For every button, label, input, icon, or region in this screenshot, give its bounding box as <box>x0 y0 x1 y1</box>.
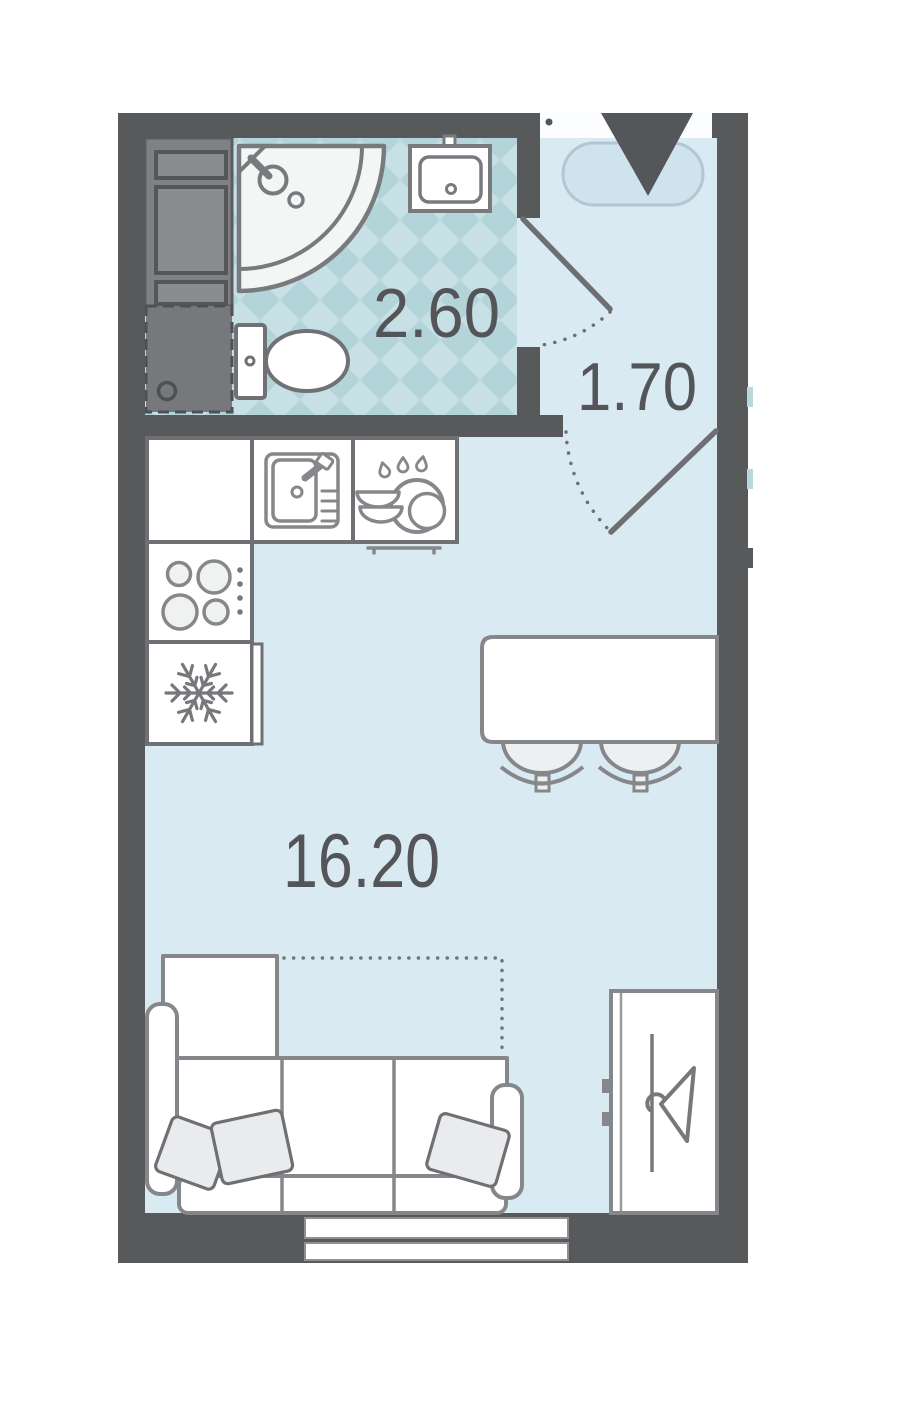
hallway-area-label: 1.70 <box>577 349 697 425</box>
stove-cabinet <box>147 542 252 642</box>
wardrobe <box>602 991 717 1213</box>
fridge-door <box>252 644 262 744</box>
washing-machine-icon <box>146 306 232 412</box>
shaft-panel <box>156 187 226 273</box>
sink-icon <box>266 453 338 527</box>
wardrobe-handle <box>602 1079 612 1093</box>
shaft-panel <box>156 282 226 304</box>
entrance-hinge-dot <box>546 119 553 126</box>
bathroom-wall-lower <box>517 347 540 415</box>
wall-top-left <box>118 113 540 138</box>
window-pane <box>305 1218 568 1238</box>
utility-shaft <box>145 138 232 306</box>
sofa-chaise <box>163 956 277 1059</box>
dining-table <box>482 637 717 742</box>
wall-below-bathroom <box>145 415 563 437</box>
window-pane <box>305 1243 568 1260</box>
wall-right <box>717 113 748 1263</box>
window <box>305 1218 568 1260</box>
toilet-icon <box>236 325 348 398</box>
floor-plan: 2.60 1.70 16.20 <box>0 0 900 1428</box>
wardrobe-handle <box>602 1112 612 1126</box>
shaft-panel <box>156 152 226 178</box>
living-area-label: 16.20 <box>283 819 440 904</box>
pillow <box>210 1109 293 1185</box>
washbasin-icon <box>410 136 490 211</box>
kitchen-counter <box>147 438 252 542</box>
bathroom-wall-upper <box>517 138 540 218</box>
wall-left <box>118 113 145 1263</box>
bathroom-area-label: 2.60 <box>373 274 500 352</box>
